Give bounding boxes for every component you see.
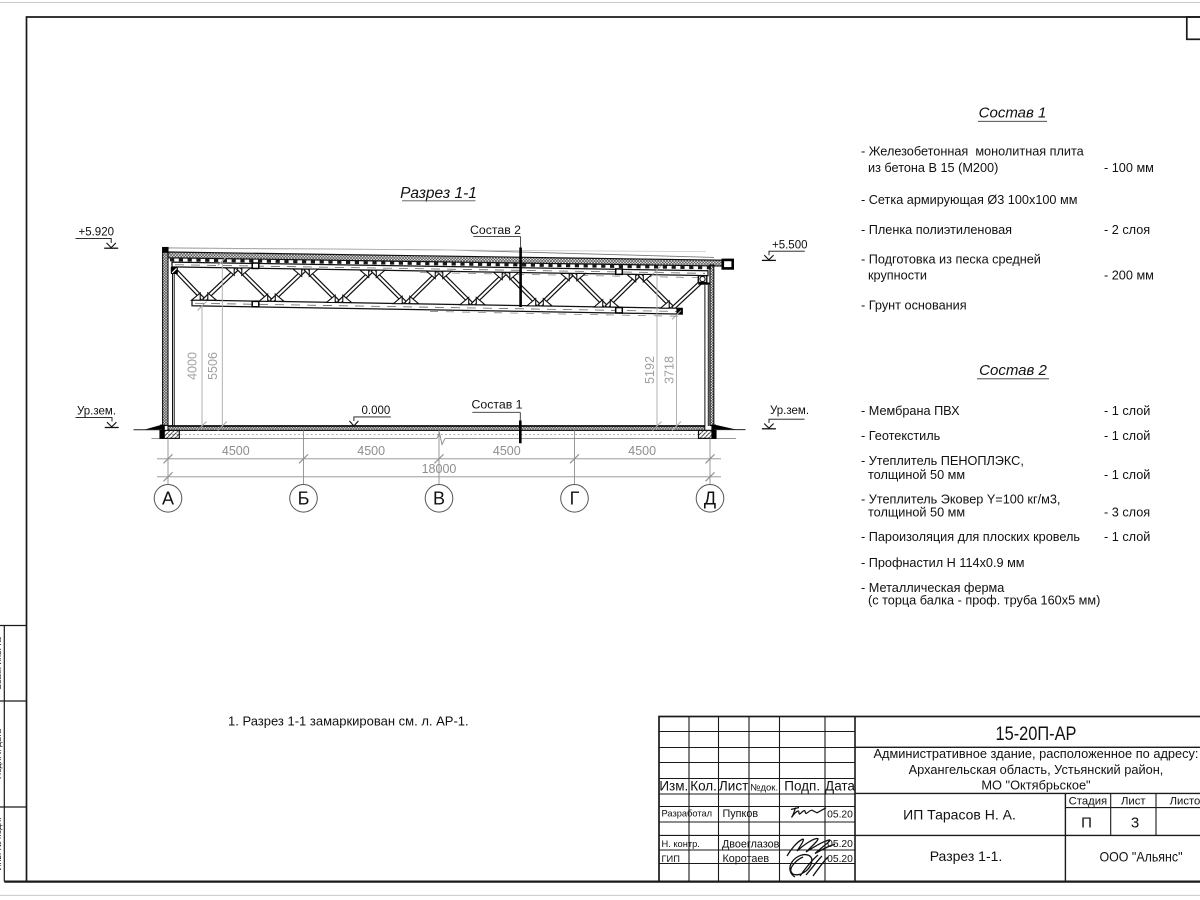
svg-text:Лист: Лист: [1121, 796, 1146, 808]
svg-text:- 1 слой: - 1 слой: [1104, 404, 1150, 418]
svg-text:3: 3: [1131, 815, 1139, 832]
svg-text:Дата: Дата: [825, 778, 855, 793]
svg-text:05.20: 05.20: [827, 854, 853, 865]
svg-text:Разрез 1-1: Разрез 1-1: [400, 185, 477, 202]
svg-text:Ур.зем.: Ур.зем.: [77, 406, 116, 418]
svg-text:Б: Б: [298, 488, 310, 508]
svg-text:ИП Тарасов Н. А.: ИП Тарасов Н. А.: [903, 807, 1016, 823]
svg-text:4500: 4500: [357, 444, 385, 458]
svg-text:Стадия: Стадия: [1069, 796, 1108, 808]
svg-text:- Утеплитель Эковер Y=100 кг/м: - Утеплитель Эковер Y=100 кг/м3,: [861, 493, 1060, 507]
svg-text:Д: Д: [704, 488, 716, 508]
svg-text:В: В: [433, 488, 445, 508]
svg-text:из бетона В 15 (М200): из бетона В 15 (М200): [868, 161, 998, 175]
svg-text:Изм.: Изм.: [659, 778, 688, 793]
svg-text:3718: 3718: [663, 356, 677, 384]
svg-text:Состав 1: Состав 1: [472, 398, 523, 412]
svg-text:(с торца балка - проф. труба 1: (с торца балка - проф. труба 160х5 мм): [868, 594, 1100, 608]
svg-text:крупности: крупности: [868, 269, 927, 283]
svg-text:- 1 слой: - 1 слой: [1104, 429, 1150, 443]
svg-text:Кол.: Кол.: [690, 778, 717, 793]
svg-text:Разработал: Разработал: [662, 809, 713, 819]
svg-text:Подп. и дата: Подп. и дата: [0, 729, 3, 779]
svg-text:ГИП: ГИП: [662, 854, 680, 864]
svg-text:Взам. инв. №: Взам. инв. №: [0, 637, 3, 690]
svg-text:05.20: 05.20: [827, 839, 853, 850]
svg-text:+5.500: +5.500: [772, 240, 808, 252]
svg-text:- Пароизоляция для плоских кро: - Пароизоляция для плоских кровель: [861, 530, 1080, 544]
svg-text:№док.: №док.: [750, 782, 778, 793]
svg-text:- 2 слоя: - 2 слоя: [1104, 223, 1150, 237]
svg-text:Архангельская область, Устьянс: Архангельская область, Устьянский район,: [909, 762, 1164, 777]
svg-text:05.20: 05.20: [827, 809, 853, 820]
svg-text:15-20П-АР: 15-20П-АР: [996, 724, 1077, 745]
svg-text:- 3 слоя: - 3 слоя: [1104, 506, 1150, 520]
svg-text:18000: 18000: [422, 462, 457, 476]
svg-text:Состав 1: Состав 1: [979, 105, 1047, 122]
svg-text:Коротаев: Коротаев: [723, 853, 770, 865]
svg-text:Лист: Лист: [719, 778, 748, 793]
svg-text:Состав 2: Состав 2: [979, 362, 1047, 379]
svg-text:толщиной 50 мм: толщиной 50 мм: [868, 506, 965, 520]
svg-text:Административное здание, распо: Административное здание, расположенное п…: [873, 746, 1198, 761]
svg-text:0.000: 0.000: [362, 405, 391, 417]
svg-text:- 1 слой: - 1 слой: [1104, 530, 1150, 544]
svg-text:4500: 4500: [222, 444, 250, 458]
svg-text:Состав 2: Состав 2: [470, 223, 521, 237]
svg-text:4500: 4500: [628, 444, 656, 458]
svg-text:- Утеплитель ПЕНОПЛЭКС,: - Утеплитель ПЕНОПЛЭКС,: [861, 454, 1024, 468]
svg-text:5192: 5192: [643, 356, 657, 384]
svg-text:5506: 5506: [206, 352, 220, 380]
svg-text:Подп.: Подп.: [784, 778, 820, 793]
svg-text:- 200 мм: - 200 мм: [1104, 269, 1154, 283]
svg-text:Ур.зем.: Ур.зем.: [770, 405, 809, 417]
svg-text:- Подготовка из песка средней: - Подготовка из песка средней: [861, 253, 1041, 267]
svg-text:4500: 4500: [493, 444, 521, 458]
svg-text:4000: 4000: [186, 352, 200, 380]
svg-text:1. Разрез 1-1 замаркирован см.: 1. Разрез 1-1 замаркирован см. л. АР-1.: [228, 713, 469, 728]
svg-text:толщиной 50 мм: толщиной 50 мм: [868, 468, 965, 482]
svg-text:Разрез 1-1.: Разрез 1-1.: [930, 848, 1003, 864]
svg-text:+5.920: +5.920: [79, 227, 115, 239]
svg-text:ООО "Альянс": ООО "Альянс": [1100, 849, 1183, 865]
svg-text:П: П: [1081, 815, 1092, 832]
svg-text:- Пленка полиэтиленовая: - Пленка полиэтиленовая: [861, 223, 1012, 237]
svg-text:- Геотекстиль: - Геотекстиль: [861, 429, 941, 443]
svg-text:- 100 мм: - 100 мм: [1104, 161, 1154, 175]
svg-text:А: А: [162, 488, 174, 508]
svg-text:- 1 слой: - 1 слой: [1104, 468, 1150, 482]
svg-text:- Мембрана ПВХ: - Мембрана ПВХ: [861, 404, 960, 418]
svg-text:- Сетка армирующая Ø3 100х100: - Сетка армирующая Ø3 100х100 мм: [861, 193, 1077, 207]
svg-text:Н. контр.: Н. контр.: [662, 839, 700, 849]
svg-text:- Профнастил Н 114х0.9 мм: - Профнастил Н 114х0.9 мм: [861, 556, 1025, 570]
svg-text:- Грунт основания: - Грунт основания: [861, 299, 967, 313]
svg-text:МО "Октябрьское": МО "Октябрьское": [981, 777, 1090, 792]
svg-text:Двоеглазов: Двоеглазов: [722, 839, 780, 851]
svg-text:Г: Г: [570, 488, 580, 508]
svg-text:- Железобетонная монолитная п: - Железобетонная монолитная плита: [861, 145, 1085, 159]
svg-text:Инв. № подл.: Инв. № подл.: [0, 818, 3, 871]
svg-text:Пупков: Пупков: [723, 808, 759, 820]
svg-text:Листов: Листов: [1170, 796, 1200, 808]
